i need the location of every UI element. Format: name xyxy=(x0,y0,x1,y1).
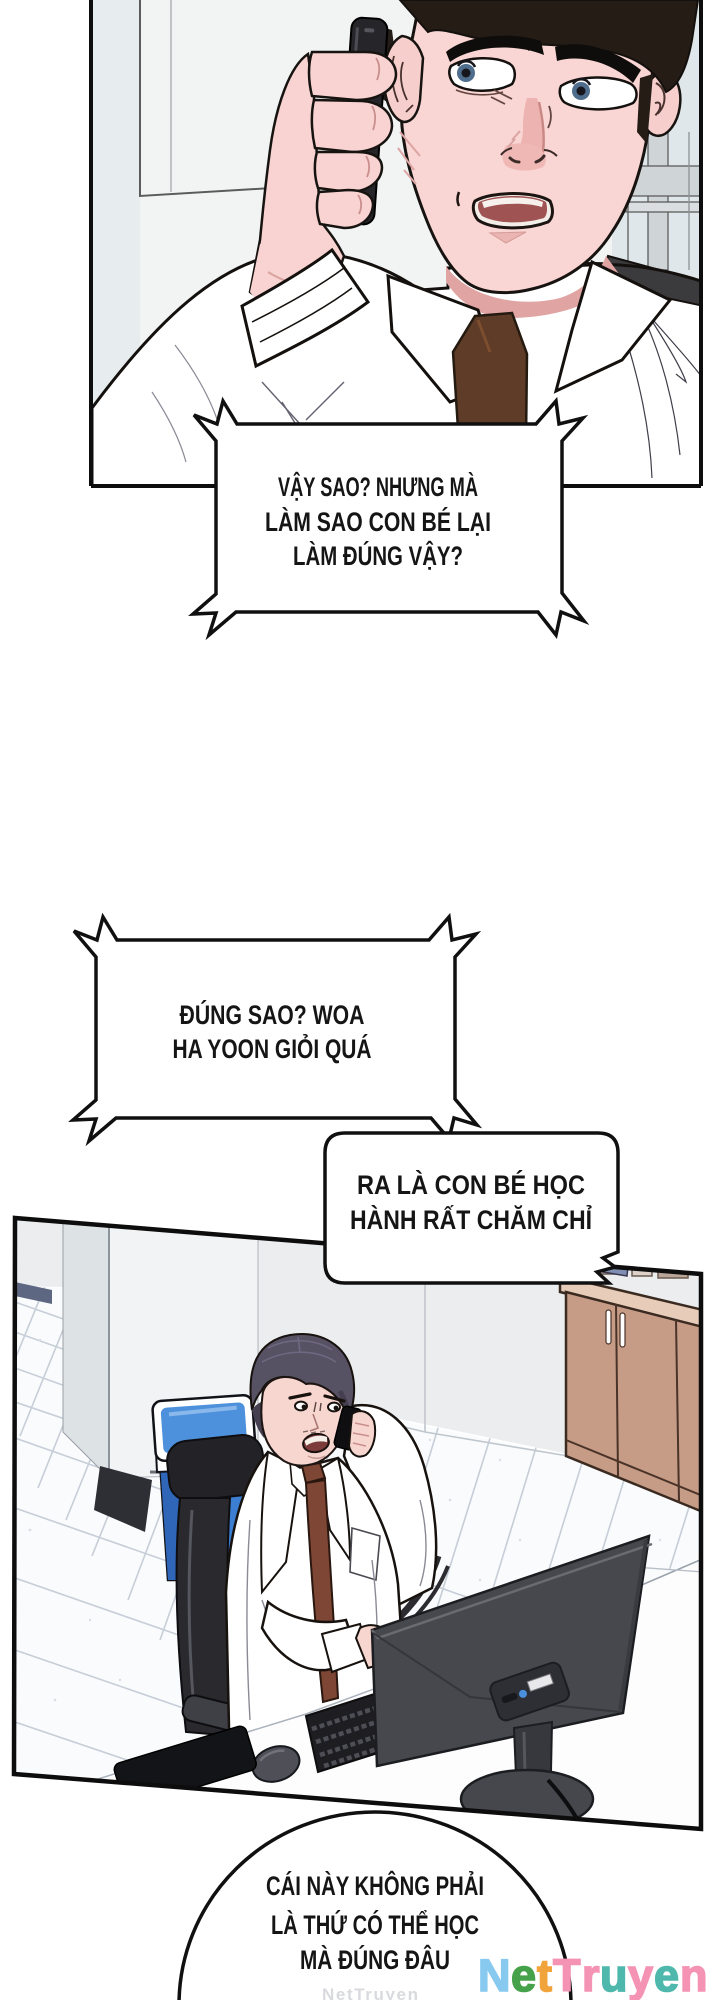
svg-text:y: y xyxy=(628,1950,653,2000)
svg-text:e: e xyxy=(654,1950,679,2000)
svg-text:VẬY SAO? NHƯNG MÀ: VẬY SAO? NHƯNG MÀ xyxy=(278,471,478,502)
svg-text:LÀ THỨ CÓ THỂ HỌC: LÀ THỨ CÓ THỂ HỌC xyxy=(271,1909,479,1940)
svg-text:e: e xyxy=(511,1950,536,2000)
svg-text:n: n xyxy=(680,1950,708,2000)
svg-text:t: t xyxy=(537,1950,552,2000)
svg-text:HA YOON GIỎI QUÁ: HA YOON GIỎI QUÁ xyxy=(173,1032,372,1064)
svg-text:u: u xyxy=(600,1950,628,2000)
svg-text:MÀ ĐÚNG ĐÂU: MÀ ĐÚNG ĐÂU xyxy=(300,1944,450,1975)
svg-text:HÀNH RẤT CHĂM CHỈ: HÀNH RẤT CHĂM CHỈ xyxy=(350,1203,592,1235)
svg-text:N: N xyxy=(478,1950,511,2000)
svg-text:NetTruyen: NetTruyen xyxy=(322,1985,418,2000)
svg-text:T: T xyxy=(553,1950,581,2000)
svg-text:ĐÚNG SAO? WOA: ĐÚNG SAO? WOA xyxy=(180,999,365,1030)
svg-text:LÀM ĐÚNG VẬY?: LÀM ĐÚNG VẬY? xyxy=(293,540,463,571)
svg-text:CÁI NÀY KHÔNG PHẢI: CÁI NÀY KHÔNG PHẢI xyxy=(266,1869,484,1901)
svg-text:LÀM SAO CON BÉ LẠI: LÀM SAO CON BÉ LẠI xyxy=(265,506,491,537)
svg-text:r: r xyxy=(582,1950,600,2000)
svg-text:RA LÀ CON BÉ HỌC: RA LÀ CON BÉ HỌC xyxy=(357,1169,585,1200)
